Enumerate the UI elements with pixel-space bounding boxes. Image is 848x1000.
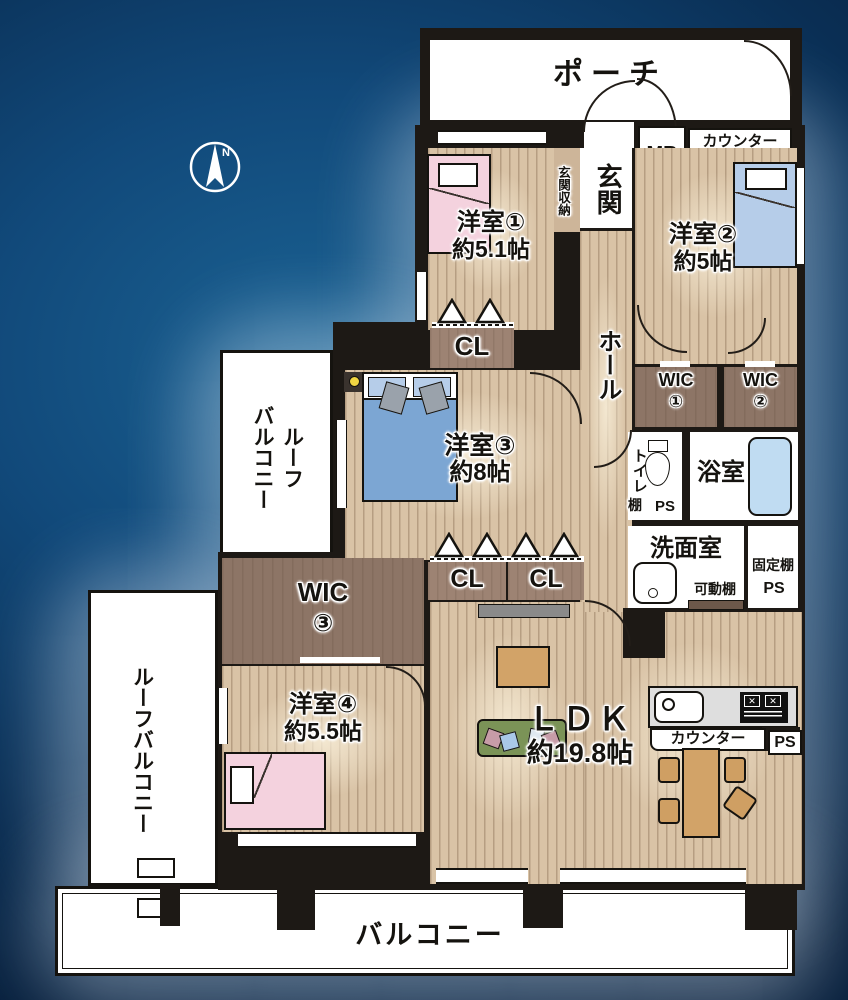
toilet-icon xyxy=(648,440,668,452)
cl-room3-b-label: CL xyxy=(508,565,584,593)
room1-window xyxy=(438,130,546,145)
ldk-window xyxy=(436,868,528,884)
roof-balcony-lower-label: ルーフバルコニー xyxy=(130,635,154,865)
room1-name: 洋室① xyxy=(418,210,564,237)
stove-burner-icon: ✕ xyxy=(744,695,760,707)
room1-size: 約5.1帖 xyxy=(418,237,564,263)
pillar xyxy=(160,884,180,926)
room2-name: 洋室② xyxy=(628,222,778,249)
kitchen-counter-label: カウンター xyxy=(670,731,745,748)
dining-chair xyxy=(658,798,680,824)
room4-pillow xyxy=(230,766,254,804)
washbasin-drain-icon xyxy=(648,588,658,598)
ps-toilet-label: PS xyxy=(650,499,680,516)
compass-n-label: N xyxy=(222,147,230,159)
room4-bed-fold xyxy=(254,754,272,798)
room3-lamp-icon xyxy=(349,376,360,387)
wic1-label: WIC ① xyxy=(635,370,717,412)
fixed-shelf-label: 固定棚 xyxy=(740,558,806,574)
wic3-door-gap xyxy=(300,657,380,663)
room1-label: 洋室① 約5.1帖 xyxy=(418,210,564,263)
washbasin-icon xyxy=(633,562,677,604)
balcony-label: バルコニー xyxy=(300,920,560,950)
room2-size: 約5帖 xyxy=(628,249,778,275)
roof-balcony-upper-line1: ルーフ xyxy=(280,372,304,542)
room3-size: 約8帖 xyxy=(390,460,570,487)
washroom-label: 洗面室 xyxy=(626,536,746,563)
ldk-window xyxy=(560,868,746,884)
roof-balcony-upper-line2: バルコニー xyxy=(250,372,274,542)
ldk-table xyxy=(496,646,550,688)
wic1-name: WIC xyxy=(635,370,717,392)
room3-name: 洋室③ xyxy=(390,432,570,460)
balcony-step xyxy=(137,858,175,878)
entrance-label: 玄関 xyxy=(593,156,622,222)
wic2-num: ② xyxy=(724,392,797,412)
compass-icon: N xyxy=(186,138,244,196)
bath-label: 浴室 xyxy=(692,460,750,487)
stove-burner-icon: ✕ xyxy=(765,695,781,707)
room1-side-window xyxy=(416,272,427,320)
wic1-num: ① xyxy=(635,392,717,412)
hall-label: ホール xyxy=(593,300,620,430)
floor-plan: N バルコニー ルーフバルコニー ルーフ バルコニー ポーチ 洋室① 約5.1帖 xyxy=(0,0,848,1000)
pillar xyxy=(277,884,315,930)
dining-chair xyxy=(724,757,746,783)
pillar xyxy=(745,884,797,930)
wic3-num: ③ xyxy=(222,609,424,639)
room1-bed-fold xyxy=(429,188,489,204)
ps-fixed-label: PS xyxy=(756,580,792,598)
dining-table xyxy=(682,748,720,838)
tv-board xyxy=(478,604,570,618)
stove-icon: ✕ ✕ xyxy=(740,692,788,723)
room3-side-window xyxy=(336,420,347,508)
room2-side-window xyxy=(796,168,805,264)
kitchen-ps-label: PS xyxy=(774,734,795,752)
room4-bottom-window xyxy=(238,832,416,848)
room2-pillow xyxy=(745,168,787,190)
cl-room1-label: CL xyxy=(430,332,514,361)
room4-bed xyxy=(224,752,326,830)
toilet-label: トイレ xyxy=(630,438,647,502)
kitchen-faucet-icon xyxy=(662,698,675,711)
room1-pillow xyxy=(438,163,478,187)
room2-label: 洋室② 約5帖 xyxy=(628,222,778,275)
wic3-name: WIC xyxy=(222,576,424,609)
wic2-name: WIC xyxy=(724,370,797,392)
room3-label: 洋室③ 約8帖 xyxy=(390,432,570,487)
roof-balcony-upper-label: ルーフ バルコニー xyxy=(228,372,326,542)
dining-chair xyxy=(658,757,680,783)
pillar xyxy=(523,884,563,928)
folding-door-icon xyxy=(430,532,584,562)
cl-room3-a-label: CL xyxy=(428,565,506,593)
folding-door-icon xyxy=(432,298,514,328)
room2-bed-fold xyxy=(735,192,795,208)
movable-shelf-label: 可動棚 xyxy=(682,582,748,598)
kitchen-ps-box: PS xyxy=(768,730,802,755)
wic3-label: WIC ③ xyxy=(222,576,424,639)
wic2-label: WIC ② xyxy=(724,370,797,412)
bathtub xyxy=(748,437,792,516)
movable-shelf xyxy=(688,600,744,610)
entrance-storage-label: 玄関収納 xyxy=(556,152,570,230)
shelf-label: 棚 xyxy=(622,498,648,514)
stove-grill-icon xyxy=(744,711,782,719)
room4-size: 約5.5帖 xyxy=(222,719,424,745)
